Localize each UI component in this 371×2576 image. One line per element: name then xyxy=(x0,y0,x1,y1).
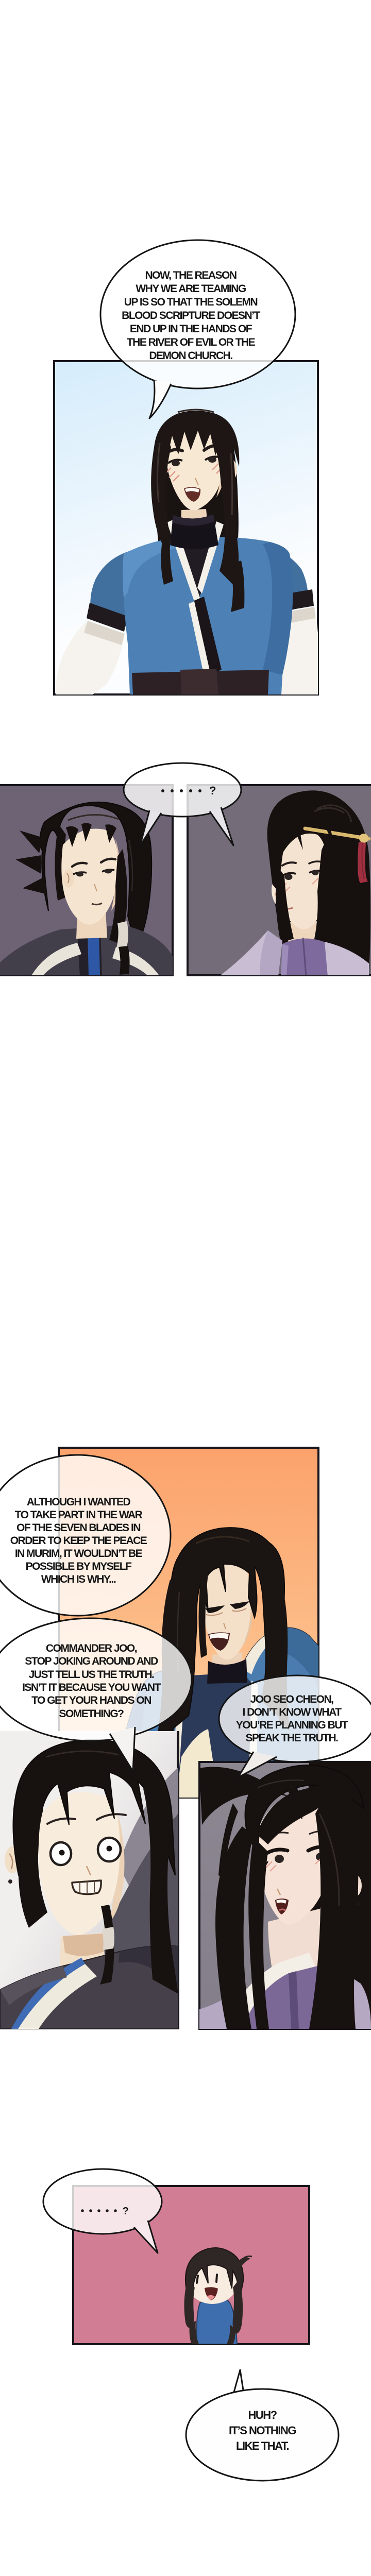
svg-text:IN MURIM, IT WOULDN’T BE: IN MURIM, IT WOULDN’T BE xyxy=(15,1548,143,1560)
svg-text:DEMON CHURCH.: DEMON CHURCH. xyxy=(149,350,232,362)
svg-text:TO GET YOUR HANDS ON: TO GET YOUR HANDS ON xyxy=(31,1694,151,1706)
svg-text:SOMETHING?: SOMETHING? xyxy=(59,1708,124,1720)
svg-text:SPEAK THE TRUTH.: SPEAK THE TRUTH. xyxy=(245,1732,338,1744)
svg-text:WHY WE ARE TEAMING: WHY WE ARE TEAMING xyxy=(136,283,246,295)
svg-text:LIKE THAT.: LIKE THAT. xyxy=(236,2439,289,2452)
svg-text:I DON’T KNOW WHAT: I DON’T KNOW WHAT xyxy=(242,1706,342,1718)
svg-text:JOO SEO CHEON,: JOO SEO CHEON, xyxy=(250,1693,333,1705)
svg-text:YOU’RE PLANNING BUT: YOU’RE PLANNING BUT xyxy=(236,1719,348,1731)
svg-text:ALTHOUGH I WANTED: ALTHOUGH I WANTED xyxy=(27,1496,131,1508)
svg-text:STOP JOKING AROUND AND: STOP JOKING AROUND AND xyxy=(25,1655,158,1667)
svg-text:HUH?: HUH? xyxy=(248,2409,277,2421)
svg-text:POSSIBLE BY MYSELF: POSSIBLE BY MYSELF xyxy=(26,1561,132,1572)
svg-text:THE RIVER OF EVIL OR THE: THE RIVER OF EVIL OR THE xyxy=(127,336,256,348)
svg-text:IT’S NOTHING: IT’S NOTHING xyxy=(229,2424,296,2437)
svg-text:OF THE SEVEN BLADES IN: OF THE SEVEN BLADES IN xyxy=(16,1522,140,1534)
svg-text:COMMANDER JOO,: COMMANDER JOO, xyxy=(46,1642,137,1654)
svg-text:NOW, THE REASON: NOW, THE REASON xyxy=(145,269,236,281)
svg-text:JUST TELL US THE TRUTH.: JUST TELL US THE TRUTH. xyxy=(29,1669,154,1681)
svg-text:BLOOD SCRIPTURE DOESN’T: BLOOD SCRIPTURE DOESN’T xyxy=(122,310,260,321)
svg-text:TO TAKE PART IN THE WAR: TO TAKE PART IN THE WAR xyxy=(15,1509,143,1521)
svg-text:?: ? xyxy=(209,784,216,797)
svg-text:END UP IN THE HANDS OF: END UP IN THE HANDS OF xyxy=(130,323,252,335)
svg-text:WHICH IS WHY...: WHICH IS WHY... xyxy=(41,1573,116,1585)
svg-text:ORDER TO KEEP THE PEACE: ORDER TO KEEP THE PEACE xyxy=(10,1535,147,1547)
svg-text:ISN’T IT BECAUSE YOU WANT: ISN’T IT BECAUSE YOU WANT xyxy=(22,1682,161,1693)
svg-text:UP IS SO THAT THE SOLEMN: UP IS SO THAT THE SOLEMN xyxy=(124,296,258,308)
svg-text:?: ? xyxy=(123,2206,129,2217)
